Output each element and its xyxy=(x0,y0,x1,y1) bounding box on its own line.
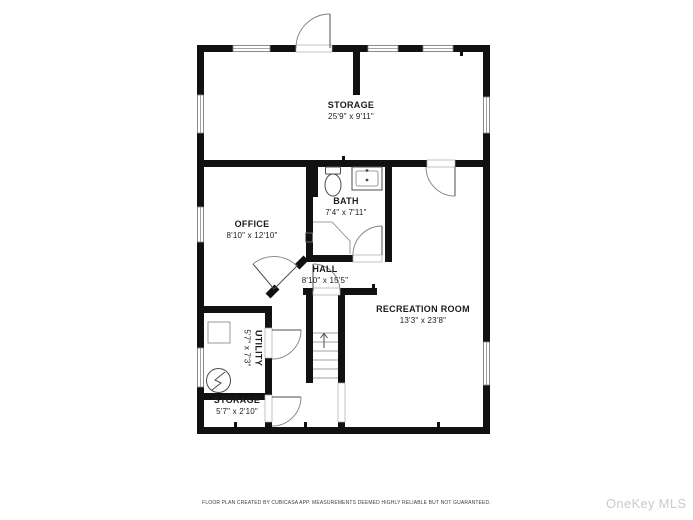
room-dimensions: 8'10" x 15'5" xyxy=(302,276,348,286)
room-name: RECREATION ROOM xyxy=(376,304,470,315)
room-dimensions: 5'7" x 7'3" xyxy=(242,329,252,366)
room-name: BATH xyxy=(325,196,366,207)
bath-door-icon xyxy=(353,226,382,255)
room-label-hall: HALL 8'10" x 15'5" xyxy=(302,264,348,285)
room-dimensions: 13'3" x 23'8" xyxy=(376,316,470,326)
toilet-icon xyxy=(325,167,341,196)
room-dimensions: 8'10" x 12'10" xyxy=(226,231,277,241)
stairs-up-arrow-icon xyxy=(321,334,328,349)
room-name: STORAGE xyxy=(328,100,374,111)
window-left-office-icon xyxy=(198,207,204,242)
room-name: HALL xyxy=(302,264,348,275)
room-name: UTILITY xyxy=(253,329,264,366)
room-label-storage-top: STORAGE 25'9" x 9'11" xyxy=(328,100,374,121)
window-top-right-1-icon xyxy=(368,46,398,52)
electrical-panel-icon xyxy=(207,369,231,393)
room-label-bath: BATH 7'4" x 7'11" xyxy=(325,196,366,217)
window-top-right-2-icon xyxy=(423,46,453,52)
sink-icon xyxy=(352,167,382,190)
disclaimer-text: FLOOR PLAN CREATED BY CUBICASA APP. MEAS… xyxy=(0,500,693,506)
floor-plan-page: STORAGE 25'9" x 9'11" OFFICE 8'10" x 12'… xyxy=(0,0,693,520)
room-dimensions: 7'4" x 7'11" xyxy=(325,208,366,218)
storage-door-icon xyxy=(272,397,301,426)
recreation-door-icon xyxy=(426,167,455,196)
room-dimensions: 25'9" x 9'11" xyxy=(328,112,374,122)
window-right-storage-icon xyxy=(484,97,490,133)
room-label-recreation-room: RECREATION ROOM 13'3" x 23'8" xyxy=(376,304,470,325)
entry-door-icon xyxy=(296,14,330,48)
utility-door-icon xyxy=(272,330,301,359)
window-left-storage-icon xyxy=(198,95,204,133)
room-dimensions: 5'7" x 2'10" xyxy=(214,407,260,417)
window-top-left-icon xyxy=(233,46,270,52)
stairs-icon xyxy=(313,333,338,378)
onekey-mls-watermark: OneKey MLS xyxy=(606,496,686,511)
room-name: OFFICE xyxy=(226,219,277,230)
room-name: STORAGE xyxy=(214,395,260,406)
office-door-icon xyxy=(253,257,297,289)
utility-box-icon xyxy=(208,322,230,343)
room-label-office: OFFICE 8'10" x 12'10" xyxy=(226,219,277,240)
window-left-utility-icon xyxy=(198,348,204,387)
room-label-utility: UTILITY 5'7" x 7'3" xyxy=(242,329,263,366)
floor-plan-drawing xyxy=(0,0,693,520)
room-label-storage-bottom: STORAGE 5'7" x 2'10" xyxy=(214,395,260,416)
window-right-recreation-icon xyxy=(484,342,490,385)
